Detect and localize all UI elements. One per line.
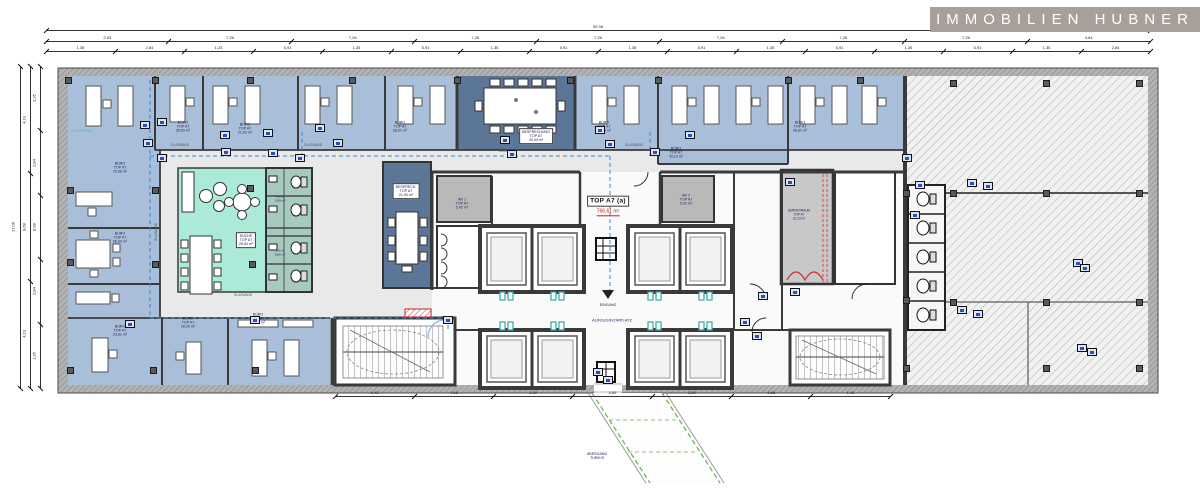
logo-text: IMMOBILIEN HUBNER — [936, 11, 1194, 28]
floor-plan-page: BÜROTOP A735,54 m²BÜROTOP A721,92 m²BÜRO… — [0, 0, 1200, 490]
floor-areas — [68, 76, 1148, 385]
walkway-to-tower-b — [588, 393, 724, 483]
staircase-right — [790, 330, 890, 385]
floor-plan-svg — [0, 0, 1200, 490]
restricted-wc-block — [908, 185, 945, 330]
staircase-left — [335, 309, 455, 385]
immobilien-hubner-logo: IMMOBILIEN HUBNER — [930, 7, 1200, 32]
